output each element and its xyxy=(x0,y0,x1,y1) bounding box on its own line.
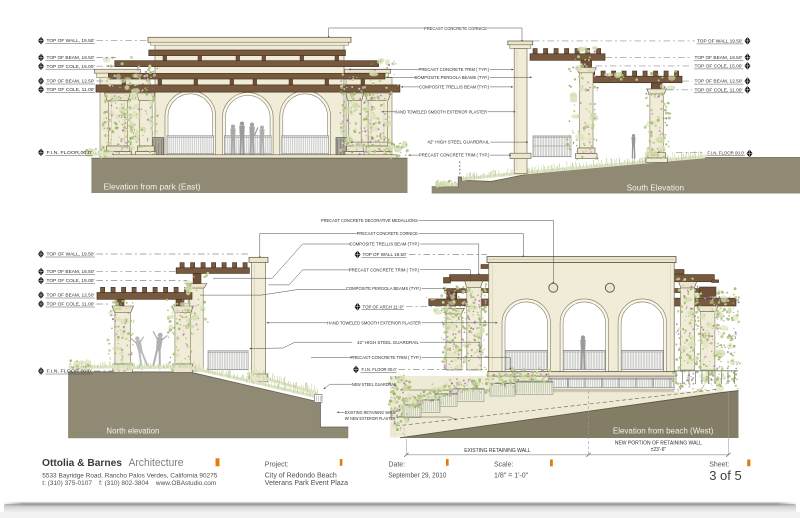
svg-text:TOP OF WALL 19.50': TOP OF WALL 19.50' xyxy=(363,252,407,258)
svg-text:1/8" = 1'-0": 1/8" = 1'-0" xyxy=(494,472,529,479)
svg-text:F.I.N. FLOOR 00.0': F.I.N. FLOOR 00.0' xyxy=(707,150,744,156)
svg-text:PRECAST CONCRETE CORNICE: PRECAST CONCRETE CORNICE xyxy=(357,231,418,236)
svg-text:W/ NEW EXTERIOR PLASTER: W/ NEW EXTERIOR PLASTER xyxy=(345,416,396,421)
svg-text:NEW PORTION OF RETAINING WALL: NEW PORTION OF RETAINING WALL xyxy=(615,441,702,447)
svg-text:TOP OF WALL 19.50': TOP OF WALL 19.50' xyxy=(697,39,742,45)
svg-text:±23'-6": ±23'-6" xyxy=(651,447,667,453)
svg-text:TOP OF COLE, 11.00': TOP OF COLE, 11.00' xyxy=(695,87,743,93)
svg-text:F.I.N. FLOOR 00.0': F.I.N. FLOOR 00.0' xyxy=(362,367,397,373)
svg-text:42" HIGH STEEL GUARDRAIL: 42" HIGH STEEL GUARDRAIL xyxy=(357,340,419,345)
svg-text:PRECAST CONCRETE DECORATIVE ME: PRECAST CONCRETE DECORATIVE MEDALLIONS xyxy=(321,218,418,223)
svg-text:COMPOSITE TRELLIS BEAM (TYP.): COMPOSITE TRELLIS BEAM (TYP.) xyxy=(419,85,489,90)
svg-text:PRECAST CONCRETE CORNICE: PRECAST CONCRETE CORNICE xyxy=(424,26,487,31)
svg-text:Scale:: Scale: xyxy=(494,461,514,468)
svg-text:EXISTING RETAINING WALL: EXISTING RETAINING WALL xyxy=(345,410,396,415)
svg-text:HAND TOWELED SMOOTH EXTERIOR P: HAND TOWELED SMOOTH EXTERIOR PLASTER xyxy=(395,109,488,114)
svg-text:TOP OF BEAM, 12.50': TOP OF BEAM, 12.50' xyxy=(47,79,95,85)
svg-text:F.I.N. FLOOR 00.0': F.I.N. FLOOR 00.0' xyxy=(47,369,92,375)
svg-text:Ottolia & Barnes: Ottolia & Barnes xyxy=(42,458,122,469)
svg-text:TOP OF COLE, 11.00': TOP OF COLE, 11.00' xyxy=(47,87,95,93)
svg-text:TOP OF COLE, 15.00': TOP OF COLE, 15.00' xyxy=(695,64,743,70)
svg-text:COMPOSITE TRELLIS BEAM (TYP.): COMPOSITE TRELLIS BEAM (TYP.) xyxy=(349,242,419,247)
svg-text:North elevation: North elevation xyxy=(106,426,159,436)
svg-text:5533 Bayridge Road, Rancho Pal: 5533 Bayridge Road, Rancho Palos Verdes,… xyxy=(42,472,217,479)
svg-text:COMPOSITE PERGOLA BEAMS (TYP.): COMPOSITE PERGOLA BEAMS (TYP.) xyxy=(415,75,490,80)
svg-text:TOP OF BEAM, 16.50': TOP OF BEAM, 16.50' xyxy=(695,55,743,61)
svg-text:PRECAST CONCRETE TRIM ( TYP.): PRECAST CONCRETE TRIM ( TYP.) xyxy=(349,267,420,272)
svg-text:City of Redondo Beach: City of Redondo Beach xyxy=(265,472,337,479)
svg-text:F.I.N. FLOOR,00.0': F.I.N. FLOOR,00.0' xyxy=(47,150,92,156)
svg-text:Elevation from park (East): Elevation from park (East) xyxy=(104,181,201,191)
svg-text:Veterans Park Event Plaza: Veterans Park Event Plaza xyxy=(265,480,348,487)
svg-text:PRECAST CONCRETE TRIM ( TYP.): PRECAST CONCRETE TRIM ( TYP.) xyxy=(350,355,421,360)
svg-text:TOP OF BEAM, 12.50': TOP OF BEAM, 12.50' xyxy=(47,293,95,299)
svg-text:September 29, 2010: September 29, 2010 xyxy=(388,472,446,479)
svg-text:TOP OF ARCH 11'-0": TOP OF ARCH 11'-0" xyxy=(363,304,405,310)
svg-text:TOP OF COLE, 15.00': TOP OF COLE, 15.00' xyxy=(47,64,95,70)
svg-text:PRECAST CONCRETE TRIM ( TYP.): PRECAST CONCRETE TRIM ( TYP.) xyxy=(419,67,490,72)
svg-text:t: (310) 375-0107 f: (310): t: (310) 375-0107 f: (310) 802-3804 www.… xyxy=(42,480,216,487)
svg-text:TOP OF COLE, 11.00': TOP OF COLE, 11.00' xyxy=(47,302,95,308)
svg-text:EXISTING RETAINING WALL: EXISTING RETAINING WALL xyxy=(464,448,531,454)
svg-text:3 of 5: 3 of 5 xyxy=(709,468,742,483)
svg-text:Date:: Date: xyxy=(388,461,405,468)
svg-text:South Elevation: South Elevation xyxy=(627,182,685,192)
svg-text:Architecture: Architecture xyxy=(129,457,184,469)
svg-text:TOP OF BEAM, 12.50': TOP OF BEAM, 12.50' xyxy=(695,79,743,85)
svg-text:PRECAST CONCRETE TRIM ( TYP.): PRECAST CONCRETE TRIM ( TYP.) xyxy=(419,153,490,158)
svg-text:COMPOSITE PERGOLA BEAMS (TYP.): COMPOSITE PERGOLA BEAMS (TYP.) xyxy=(346,286,421,291)
svg-text:NEW STEEL GUARDRAIL: NEW STEEL GUARDRAIL xyxy=(352,382,397,387)
svg-text:TOP OF BEAM, 16.50': TOP OF BEAM, 16.50' xyxy=(47,55,95,61)
svg-text:TOP OF WALL, 19.50': TOP OF WALL, 19.50' xyxy=(47,252,95,258)
svg-text:Project:: Project: xyxy=(265,461,289,468)
svg-text:TOP OF COLE, 15.00': TOP OF COLE, 15.00' xyxy=(47,278,95,284)
svg-text:TOP OF WALL, 19.50': TOP OF WALL, 19.50' xyxy=(47,38,95,44)
svg-text:HAND TOWELED SMOOTH EXTERIOR P: HAND TOWELED SMOOTH EXTERIOR PLASTER xyxy=(327,320,421,325)
svg-text:42" HIGH STEEL GUARDRAIL: 42" HIGH STEEL GUARDRAIL xyxy=(427,140,489,145)
svg-text:TOP OF BEAM, 16.50': TOP OF BEAM, 16.50' xyxy=(47,269,95,275)
svg-text:Elevation from beach (West): Elevation from beach (West) xyxy=(613,425,714,435)
